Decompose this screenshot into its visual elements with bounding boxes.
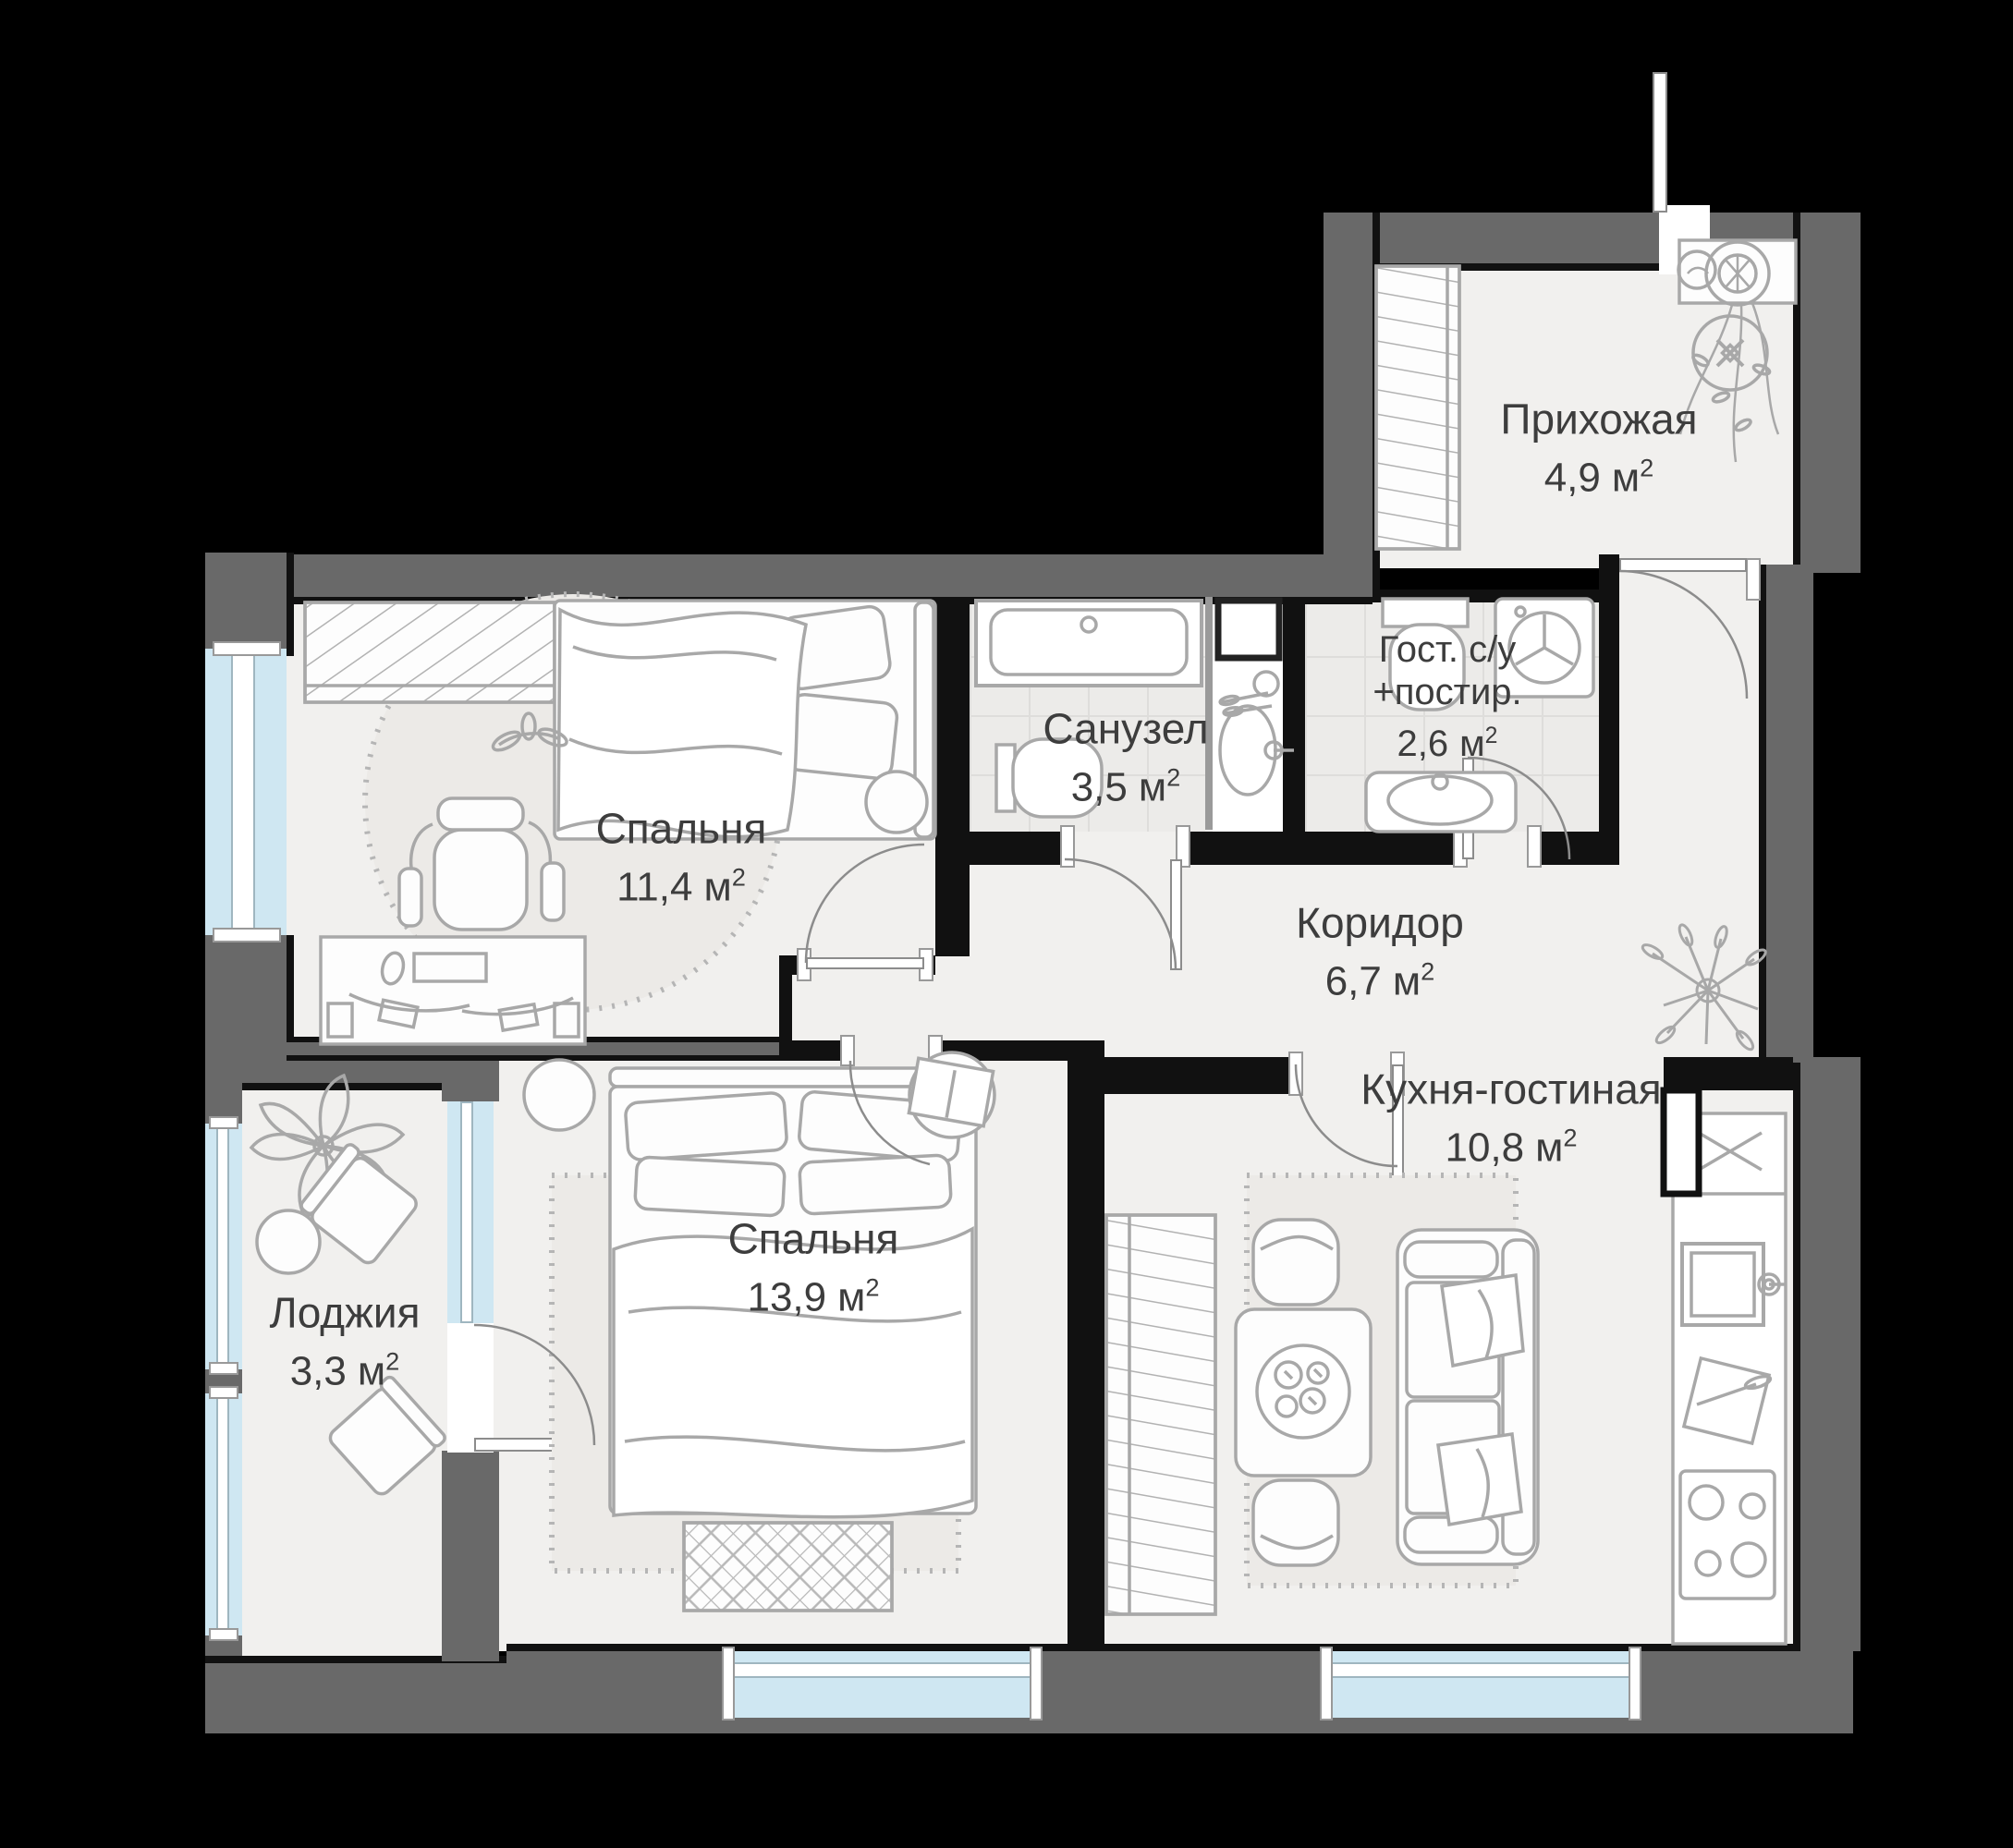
desk-icon: [321, 937, 585, 1044]
room-label-corridor: Коридор 6,7м2: [1296, 898, 1464, 1006]
room-label-guest-wc: Гост. с/у +постир. 2,6м2: [1372, 628, 1521, 767]
door-arc-bathroom: [1065, 859, 1176, 970]
room-label-bathroom: Санузел 3,5м2: [1043, 704, 1208, 812]
kitchen-closet-icon: [1106, 1215, 1215, 1614]
bed-bench-icon: [684, 1523, 892, 1611]
room-label-bedroom2: Спальня 13,9м2: [728, 1214, 899, 1322]
room-label-bedroom1: Спальня 11,4м2: [596, 804, 767, 912]
guest-sink-icon: [1366, 772, 1516, 832]
ceiling-light-icon: [1693, 316, 1767, 390]
dining-chair-bottom-icon: [1253, 1480, 1338, 1565]
bathroom-sink-icon: [1220, 706, 1294, 795]
door-arc-hallway-corridor: [1619, 571, 1747, 699]
dining-table-icon: [1236, 1309, 1371, 1476]
toothbrush-cup-icon: [1219, 672, 1278, 716]
duct-box: [1218, 601, 1279, 658]
door-arc-bedroom1: [806, 845, 924, 963]
corridor-plant-icon: [1641, 923, 1768, 1052]
room-label-loggia: Лоджия 3,3м2: [270, 1288, 421, 1396]
side-table-left-icon: [524, 1060, 594, 1130]
kitchen-duct-box: [1664, 1090, 1699, 1194]
room-label-kitchen-living: Кухня-гостиная 10,8м2: [1360, 1064, 1661, 1173]
side-table-round-icon: [866, 772, 927, 833]
room-label-hallway: Прихожая 4,9м2: [1500, 395, 1697, 503]
side-table-right-icon: [909, 1052, 994, 1137]
bathtub-icon: [976, 601, 1202, 686]
wardrobe-icon: [305, 602, 555, 702]
hall-wardrobe-icon: [1376, 266, 1459, 549]
stove-icon: [1680, 1471, 1775, 1599]
loggia-table-icon: [257, 1210, 320, 1273]
furniture-layer: [0, 0, 2013, 1848]
sofa-icon: [1397, 1230, 1538, 1564]
floor-plan: Прихожая 4,9м2 Спальня 11,4м2 Санузел 3,…: [0, 0, 2013, 1848]
dining-chair-top-icon: [1253, 1220, 1338, 1305]
